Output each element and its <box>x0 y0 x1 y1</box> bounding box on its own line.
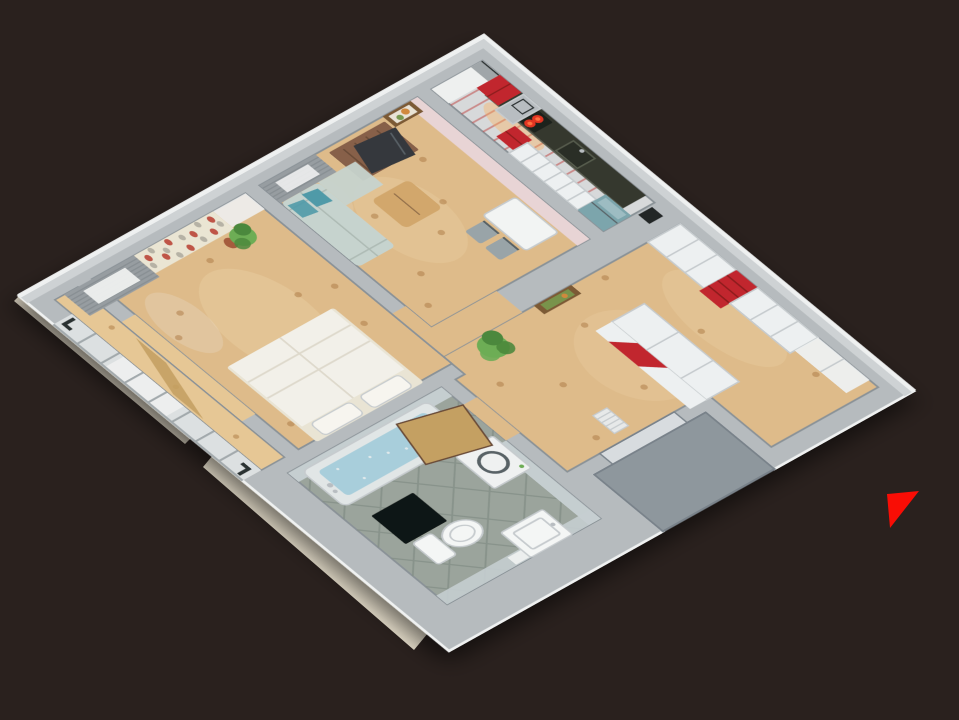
apartment-render-stage <box>0 0 959 720</box>
floor-plan-svg <box>0 0 959 720</box>
